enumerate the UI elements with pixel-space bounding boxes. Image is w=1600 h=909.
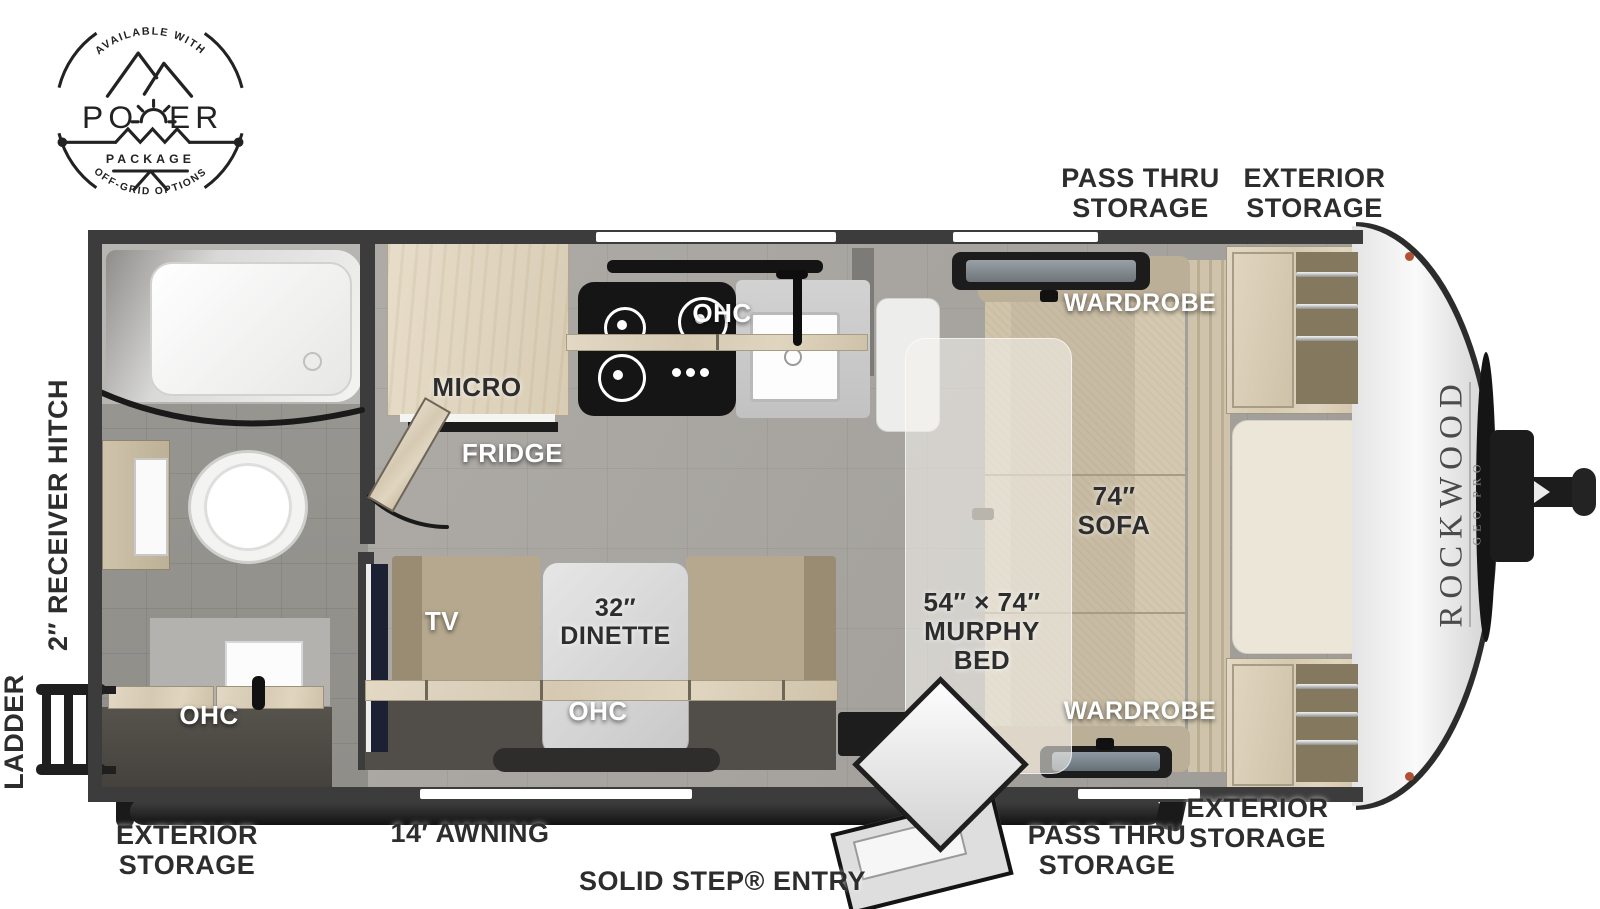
wardrobe-rail-icon <box>1296 740 1358 745</box>
window-glass <box>966 260 1136 282</box>
kitchen-ohc-shelf-divider <box>716 334 719 350</box>
wardrobe-bottom-door <box>1232 664 1294 786</box>
floorplan-page: AVAILABLE WITH OFF-GRID OPTIONS PO ER PA… <box>0 0 1600 909</box>
label-wardrobe-bottom: WARDROBE <box>1055 698 1225 725</box>
label-ohc-dinette: OHC <box>553 698 643 725</box>
label-wardrobe-top: WARDROBE <box>1055 290 1225 317</box>
dinette-table <box>542 562 689 756</box>
murphy-bed-handle-icon <box>972 508 994 520</box>
bathtub-basin <box>150 262 352 396</box>
knob-dot-icon <box>672 368 681 377</box>
kitchen-faucet-icon <box>793 274 802 346</box>
label-exterior-storage-top: EXTERIOR STORAGE <box>1222 163 1407 223</box>
wardrobe-top-door <box>1232 252 1294 408</box>
label-awning: 14′ AWNING <box>350 818 590 848</box>
label-ohc-bath: OHC <box>164 702 254 729</box>
bed-platform-wood <box>1188 260 1230 772</box>
mattress-front <box>1232 420 1366 654</box>
wardrobe-rail-icon <box>1296 272 1358 277</box>
geo-pro-decal: GEO PRO <box>1470 403 1485 603</box>
window-strip <box>953 232 1098 242</box>
marker-light-icon <box>1405 772 1414 781</box>
rockwood-decal: ROCKWOOD <box>1434 353 1471 653</box>
label-ladder: LADDER <box>0 652 29 812</box>
label-murphy-bed: 54″ × 74″ MURPHY BED <box>898 588 1066 675</box>
marker-light-icon <box>1405 252 1414 261</box>
label-fridge: FRIDGE <box>440 440 585 467</box>
label-micro: MICRO <box>407 372 547 402</box>
label-dinette: 32″ DINETTE <box>548 594 683 650</box>
dinette-ohc-divider <box>782 680 785 700</box>
awning-tube <box>130 798 1162 825</box>
knob-dot-icon <box>686 368 695 377</box>
label-exterior-storage-bottom-left: EXTERIOR STORAGE <box>92 820 282 880</box>
wardrobe-rail-icon <box>1296 304 1358 309</box>
label-entry: SOLID STEP® ENTRY <box>570 866 875 896</box>
label-pass-thru-storage-top: PASS THRU STORAGE <box>1047 163 1234 223</box>
window-latch-icon <box>1096 738 1114 750</box>
label-tv: TV <box>412 608 472 635</box>
hitch-coupler-icon <box>1572 468 1596 516</box>
window-strip <box>596 232 836 242</box>
label-receiver-hitch: 2″ RECEIVER HITCH <box>43 345 73 685</box>
burner-center-icon <box>617 320 627 330</box>
dinette-ohc-divider <box>425 680 428 700</box>
badge-arc-top-text: AVAILABLE WITH <box>93 25 208 57</box>
tub-drain-icon <box>303 352 322 371</box>
label-exterior-storage-bottom-right: EXTERIOR STORAGE <box>1165 793 1350 853</box>
wardrobe-rail-icon <box>1296 336 1358 341</box>
badge-subtitle: PACKAGE <box>106 152 195 166</box>
kitchen-faucet-icon <box>776 270 808 279</box>
toilet-seat <box>204 463 292 551</box>
knob-dot-icon <box>700 368 709 377</box>
power-package-badge: AVAILABLE WITH OFF-GRID OPTIONS PO ER PA… <box>48 8 253 213</box>
wardrobe-rail-icon <box>1296 684 1358 689</box>
label-ohc-kitchen: OHC <box>677 300 767 327</box>
tv <box>371 564 388 752</box>
wall-rear <box>88 230 102 802</box>
hitch-chevron-icon <box>1534 481 1550 503</box>
wardrobe-bottom-shelves <box>1296 664 1358 782</box>
mountains-icon <box>107 53 191 96</box>
dinette-ohc-divider <box>688 680 691 700</box>
window-strip <box>420 789 692 799</box>
floor-mat <box>493 748 720 772</box>
burner-center-icon <box>613 370 623 380</box>
wardrobe-rail-icon <box>1296 712 1358 717</box>
label-sofa: 74″ SOFA <box>1058 482 1170 540</box>
dinette-ohc-divider <box>540 680 543 700</box>
vanity-mirror <box>134 458 168 556</box>
